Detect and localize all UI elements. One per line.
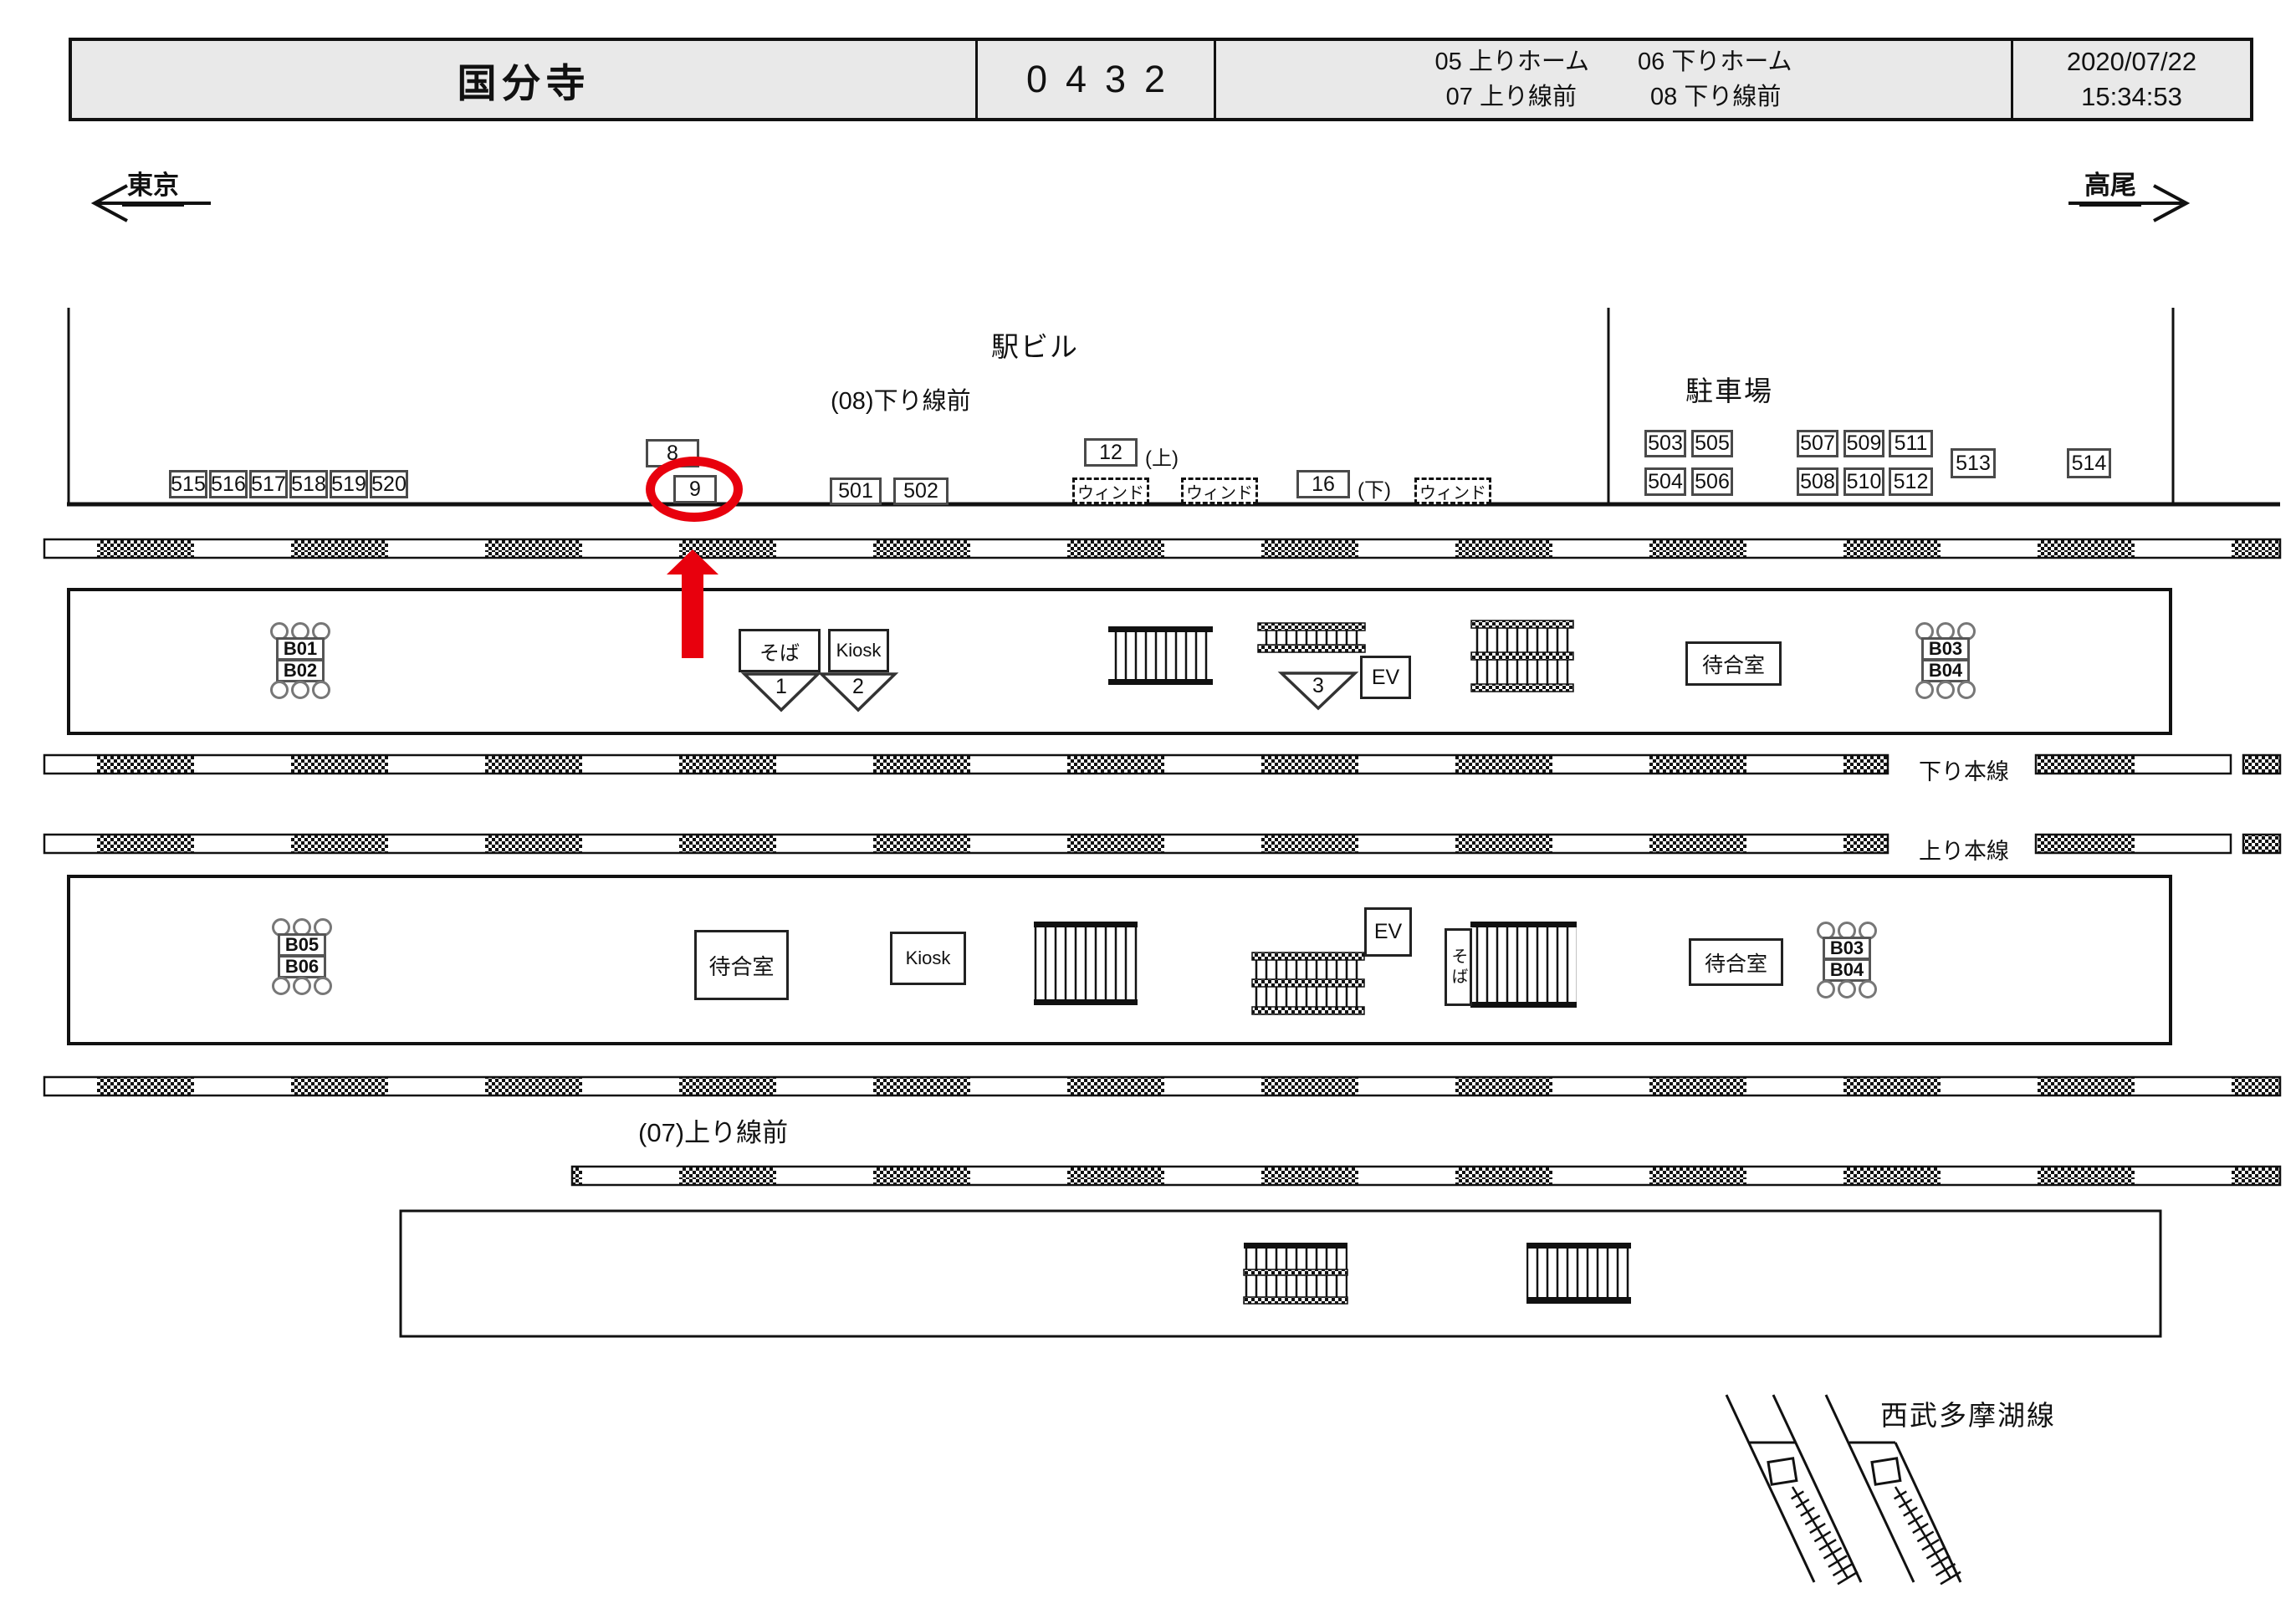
berth-circle <box>1957 681 1976 699</box>
elevator-box: EV <box>1360 656 1411 699</box>
location-box-516[interactable]: 516 <box>209 470 248 498</box>
elevator-box: EV <box>1364 907 1412 957</box>
berth-box-b04[interactable]: B04 <box>1823 958 1871 982</box>
stair-number-3: 3 <box>1306 674 1331 698</box>
berth-circle <box>1859 980 1877 998</box>
highlight-arrow-shaft <box>682 573 703 658</box>
p05-stair-2 <box>1470 922 1577 1008</box>
berth-circle <box>291 681 309 699</box>
location-box-514[interactable]: 514 <box>2067 448 2111 478</box>
location-box-16[interactable]: 16 <box>1296 470 1350 498</box>
location-box-12[interactable]: 12 <box>1084 438 1138 467</box>
p05-escalator-combo <box>1252 952 1364 1014</box>
berth-circle <box>1915 681 1934 699</box>
location-box-507[interactable]: 507 <box>1797 430 1838 457</box>
station-layout-screen: 国分寺 0432 05 上りホーム 06 下りホーム 07 上り線前 08 下り… <box>0 0 2296 1624</box>
location-box-508[interactable]: 508 <box>1797 467 1838 496</box>
highlight-circle <box>646 457 743 522</box>
location-box-503[interactable]: 503 <box>1644 430 1686 457</box>
berth-circle <box>1838 980 1856 998</box>
berth-circle <box>270 681 289 699</box>
seibu-stair <box>1526 1243 1631 1304</box>
berth-box-b06[interactable]: B06 <box>278 955 326 978</box>
window-box-2[interactable]: ウィンド <box>1181 477 1258 504</box>
kiosk-box: Kiosk <box>890 932 966 985</box>
berth-box-b01[interactable]: B01 <box>276 637 325 661</box>
diagram-artwork <box>0 0 2296 1624</box>
berth-circle <box>1817 980 1835 998</box>
location-box-513[interactable]: 513 <box>1951 448 1996 478</box>
location-box-515[interactable]: 515 <box>169 470 207 498</box>
waiting-room-box: 待合室 <box>694 930 789 1000</box>
waiting-room-box: 待合室 <box>1685 641 1782 686</box>
berth-circle <box>314 977 332 995</box>
location-box-519[interactable]: 519 <box>330 470 368 498</box>
berth-box-b03[interactable]: B03 <box>1823 937 1871 960</box>
highlight-arrow-head <box>667 549 718 575</box>
p06-stair-escalator-combo <box>1471 620 1573 692</box>
berth-bank-b03-b04-up[interactable]: B03 B04 <box>1817 922 1877 998</box>
window-box-1[interactable]: ウィンド <box>1072 477 1149 504</box>
berth-circle <box>293 977 311 995</box>
location-box-512[interactable]: 512 <box>1889 467 1933 496</box>
arrow-to-tokyo <box>95 186 211 221</box>
p06-escalator <box>1258 623 1365 652</box>
location-box-520[interactable]: 520 <box>370 470 408 498</box>
location-box-518[interactable]: 518 <box>289 470 328 498</box>
location-box-506[interactable]: 506 <box>1691 467 1733 496</box>
p06-stair-1 <box>1108 626 1213 685</box>
location-box-502[interactable]: 502 <box>893 477 949 505</box>
location-box-517[interactable]: 517 <box>249 470 288 498</box>
kiosk-box: Kiosk <box>828 629 889 672</box>
location-box-509[interactable]: 509 <box>1843 430 1884 457</box>
berth-bank-b01-b02[interactable]: B01 B02 <box>270 622 330 699</box>
p05-stair-1 <box>1034 922 1138 1005</box>
berth-bank-b05-b06[interactable]: B05 B06 <box>272 918 332 995</box>
berth-circle <box>312 681 330 699</box>
stair-number-1: 1 <box>769 675 794 699</box>
berth-bank-b03-b04[interactable]: B03 B04 <box>1915 622 1976 699</box>
stair-number-2: 2 <box>846 675 871 699</box>
berth-box-b04[interactable]: B04 <box>1921 659 1970 682</box>
arrow-to-takao <box>2068 186 2186 221</box>
berth-box-b03[interactable]: B03 <box>1921 637 1970 661</box>
location-box-504[interactable]: 504 <box>1644 467 1686 496</box>
seibu-stair-escalator <box>1244 1243 1347 1304</box>
soba-stand-box: そば <box>1445 928 1472 1006</box>
location-box-510[interactable]: 510 <box>1843 467 1884 496</box>
location-box-505[interactable]: 505 <box>1691 430 1733 457</box>
soba-stand-box: そば <box>739 629 821 672</box>
window-box-3[interactable]: ウィンド <box>1414 477 1491 504</box>
berth-circle <box>272 977 290 995</box>
waiting-room-box: 待合室 <box>1689 938 1783 986</box>
location-box-511[interactable]: 511 <box>1889 430 1933 457</box>
berth-box-b05[interactable]: B05 <box>278 933 326 957</box>
location-box-501[interactable]: 501 <box>830 477 882 505</box>
berth-circle <box>1936 681 1955 699</box>
tamako-line-tracks <box>1726 1395 1961 1584</box>
berth-box-b02[interactable]: B02 <box>276 659 325 682</box>
